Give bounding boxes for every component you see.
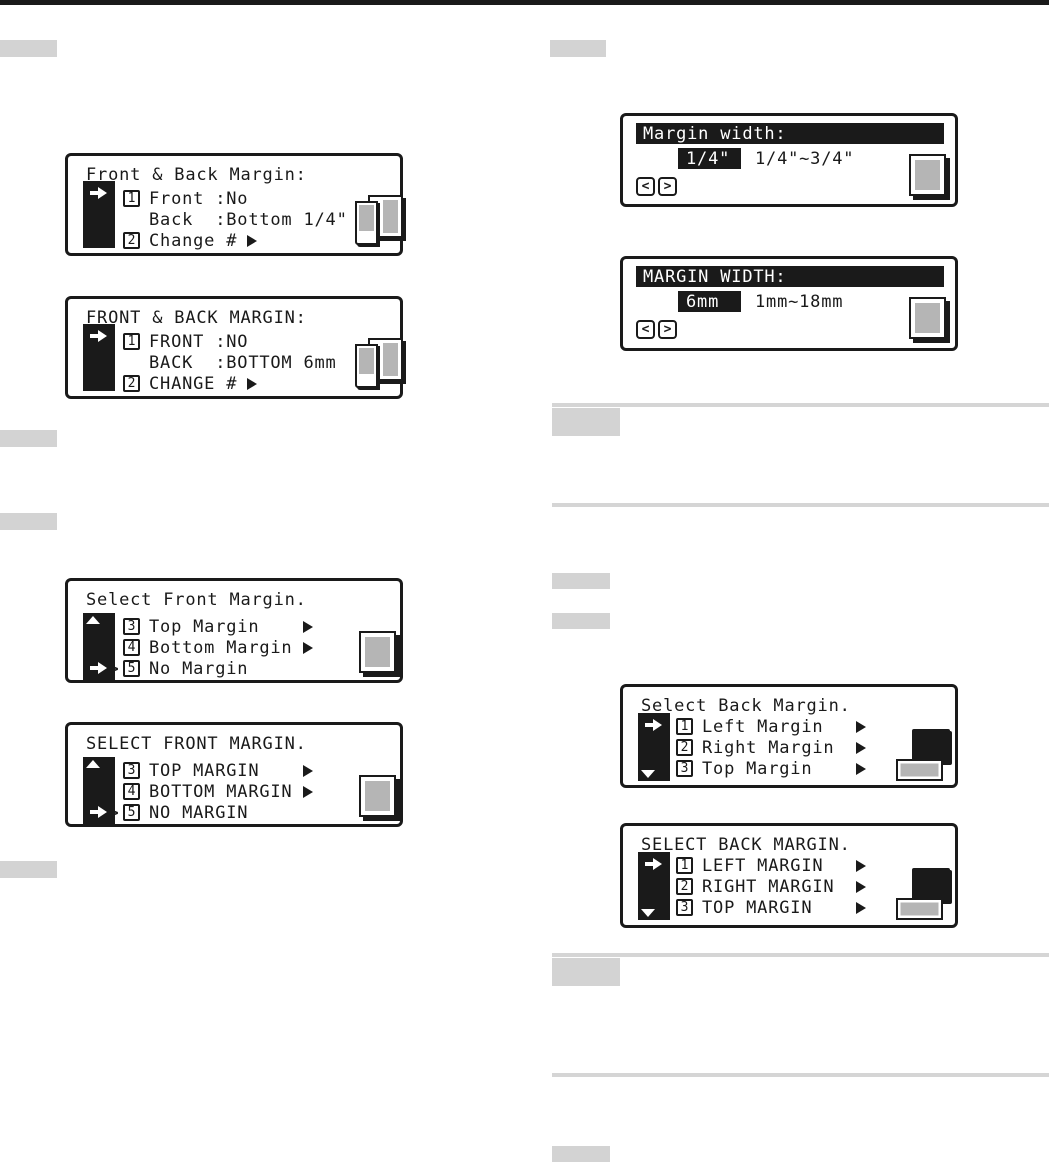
heading-placeholder	[0, 430, 57, 447]
cursor-arrow-icon	[644, 718, 663, 732]
submenu-arrow-icon	[856, 881, 866, 893]
key-number-icon: 3	[676, 899, 693, 916]
increase-arrow-icon: >	[658, 320, 677, 339]
submenu-arrow-icon	[303, 786, 313, 798]
key-number-icon: 1	[123, 190, 140, 207]
submenu-arrow-icon	[303, 765, 313, 777]
single-page-icon	[359, 775, 396, 817]
submenu-arrow-icon	[247, 378, 257, 390]
menu-line-bottom-margin: 4 BOTTOM MARGIN	[123, 781, 292, 802]
cursor-arrow-icon	[89, 329, 108, 343]
key-number-icon: 4	[123, 639, 140, 656]
scroll-down-icon	[641, 909, 655, 917]
key-number-icon: 1	[676, 718, 693, 735]
menu-line-top-margin: 3 Top Margin	[123, 616, 292, 637]
booklet-pages-icon	[355, 195, 403, 249]
single-page-icon	[909, 154, 946, 196]
scroll-up-icon	[86, 760, 100, 768]
menu-line-top-margin: 3 TOP MARGIN	[123, 760, 292, 781]
section-divider	[552, 1073, 1049, 1077]
key-number-icon: 1	[123, 333, 140, 350]
key-number-icon: 2	[676, 739, 693, 756]
menu-line-top-margin: 3 TOP MARGIN	[676, 897, 834, 918]
heading-placeholder	[552, 573, 610, 589]
heading-placeholder	[550, 40, 606, 57]
selection-bar	[83, 324, 115, 391]
menu-line-change: 2 CHANGE #	[123, 373, 337, 394]
key-number-icon: 1	[676, 857, 693, 874]
key-number-icon: 3	[123, 762, 140, 779]
key-number-icon: 4	[123, 783, 140, 800]
decrease-arrow-icon: <	[636, 320, 655, 339]
menu-line-no-margin: > 5 NO MARGIN	[123, 802, 292, 823]
cursor-arrow-icon	[644, 857, 663, 871]
increase-arrow-icon: >	[658, 177, 677, 196]
scroll-up-icon	[86, 616, 100, 624]
key-number-icon: 5	[123, 804, 140, 821]
back-page-margin-icon	[896, 868, 950, 920]
menu-line-change: 2 Change #	[123, 230, 348, 251]
heading-placeholder	[552, 613, 610, 629]
key-number-icon: 2	[676, 878, 693, 895]
submenu-arrow-icon	[856, 721, 866, 733]
single-page-icon	[359, 631, 396, 673]
selection-bar	[83, 181, 115, 248]
lcd-screen-margin-width-mm: MARGIN WIDTH: 6mm 1mm~18mm < >	[620, 256, 958, 351]
note-badge-placeholder	[552, 408, 620, 436]
selection-chevron: >	[109, 659, 119, 678]
single-page-icon	[909, 297, 946, 339]
key-number-icon: 3	[676, 760, 693, 777]
submenu-arrow-icon	[856, 742, 866, 754]
menu-line-top-margin: 3 Top Margin	[676, 758, 834, 779]
lcd-title-bar: MARGIN WIDTH:	[636, 266, 944, 287]
menu-line-bottom-margin: 4 Bottom Margin	[123, 637, 292, 658]
menu-line-left-margin: 1 Left Margin	[676, 716, 834, 737]
lcd-title: SELECT BACK MARGIN.	[641, 835, 851, 855]
menu-line-front: 1 FRONT :NO	[123, 331, 337, 352]
value-range: 1mm~18mm	[755, 291, 843, 312]
value-range: 1/4"~3/4"	[755, 148, 854, 169]
lcd-screen-select-front-margin-mm: SELECT FRONT MARGIN. 3 TOP MARGIN 4 BOTT…	[65, 722, 403, 827]
manual-page: Front & Back Margin: 1 Front :No Back :B…	[0, 0, 1049, 1162]
submenu-arrow-icon	[303, 621, 313, 633]
cursor-arrow-icon	[89, 805, 108, 819]
booklet-pages-icon	[355, 338, 403, 392]
menu-line-left-margin: 1 LEFT MARGIN	[676, 855, 834, 876]
back-page-margin-icon	[896, 729, 950, 781]
lcd-screen-select-back-margin-inch: Select Back Margin. 1 Left Margin 2 Righ…	[620, 684, 958, 788]
selection-bar	[638, 713, 670, 781]
lcd-screen-front-back-margin-inch: Front & Back Margin: 1 Front :No Back :B…	[65, 153, 403, 256]
lcd-title: SELECT FRONT MARGIN.	[86, 734, 307, 754]
lcd-screen-margin-width-inch: Margin width: 1/4" 1/4"~3/4" < >	[620, 113, 958, 207]
menu-line-front: 1 Front :No	[123, 188, 348, 209]
menu-line-back: Back :Bottom 1/4"	[123, 209, 348, 230]
key-number-icon: 2	[123, 375, 140, 392]
lcd-title: FRONT & BACK MARGIN:	[86, 308, 307, 328]
scroll-down-icon	[641, 770, 655, 778]
heading-placeholder	[552, 1146, 610, 1162]
key-number-icon: 3	[123, 618, 140, 635]
menu-line-right-margin: 2 RIGHT MARGIN	[676, 876, 834, 897]
page-top-rule	[0, 0, 1049, 5]
menu-line-back: BACK :BOTTOM 6mm	[123, 352, 337, 373]
note-badge-placeholder	[552, 958, 620, 986]
lcd-screen-select-back-margin-mm: SELECT BACK MARGIN. 1 LEFT MARGIN 2 RIGH…	[620, 823, 958, 928]
menu-line-right-margin: 2 Right Margin	[676, 737, 834, 758]
menu-line-no-margin: > 5 No Margin	[123, 658, 292, 679]
lcd-title-bar: Margin width:	[636, 123, 944, 144]
lcd-title: Select Front Margin.	[86, 590, 307, 610]
current-value: 1/4"	[678, 148, 741, 169]
lcd-screen-select-front-margin-inch: Select Front Margin. 3 Top Margin 4 Bott…	[65, 578, 403, 683]
decrease-arrow-icon: <	[636, 177, 655, 196]
key-number-icon: 2	[123, 232, 140, 249]
submenu-arrow-icon	[856, 763, 866, 775]
key-number-icon: 5	[123, 660, 140, 677]
section-divider	[552, 503, 1049, 507]
current-value: 6mm	[678, 291, 741, 312]
section-divider	[552, 403, 1049, 407]
selection-bar	[638, 852, 670, 920]
submenu-arrow-icon	[303, 642, 313, 654]
lcd-title: Front & Back Margin:	[86, 165, 307, 185]
heading-placeholder	[0, 861, 57, 878]
cursor-arrow-icon	[89, 661, 108, 675]
selection-chevron: >	[109, 803, 119, 822]
heading-placeholder	[0, 40, 57, 57]
submenu-arrow-icon	[856, 902, 866, 914]
lcd-title: Select Back Margin.	[641, 696, 851, 716]
lcd-screen-front-back-margin-mm: FRONT & BACK MARGIN: 1 FRONT :NO BACK :B…	[65, 296, 403, 399]
heading-placeholder	[0, 513, 57, 530]
submenu-arrow-icon	[247, 235, 257, 247]
section-divider	[552, 953, 1049, 957]
cursor-arrow-icon	[89, 186, 108, 200]
submenu-arrow-icon	[856, 860, 866, 872]
